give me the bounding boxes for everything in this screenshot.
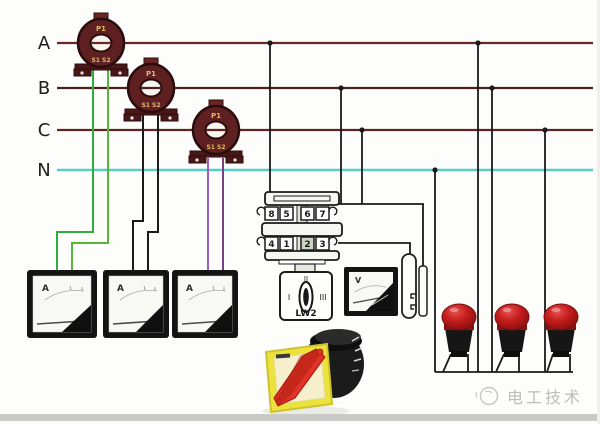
voltmeter: V: [344, 267, 398, 316]
wiring-diagram: A B C N: [0, 0, 600, 424]
watermark: 电工技术: [476, 388, 583, 408]
terminal-1: 1: [283, 240, 289, 250]
bus-label-a: A: [38, 33, 51, 54]
indicator-lamp-3: [544, 304, 578, 357]
ct2-wire-s1: [133, 115, 143, 271]
ct2-wire-s2: [148, 115, 158, 271]
bottom-border-bar: [0, 414, 600, 421]
bus-label-n: N: [37, 160, 50, 181]
ammeter-2-unit: A: [117, 284, 124, 294]
terminal-5: 5: [283, 210, 289, 220]
current-transformer-3: P1 S1 S2: [189, 100, 243, 163]
lamp3-lead-left: [547, 354, 553, 372]
junction-dots: [267, 40, 547, 172]
ammeter-3: A: [172, 270, 238, 338]
terminal-8: 8: [268, 210, 274, 220]
lamp2-lead-left: [496, 354, 504, 372]
terminal-7: 7: [319, 210, 325, 220]
cam-switch-face: II I III LW2: [280, 272, 332, 320]
ammeter-1: A: [27, 270, 97, 338]
switch-position-left: I: [288, 293, 290, 302]
terminal-2: 2: [304, 240, 310, 250]
ammeter-1-unit: A: [42, 284, 49, 294]
terminal-4: 4: [268, 240, 274, 250]
switch-to-voltmeter-wire-2: [338, 243, 410, 256]
ct1-primary-label: P1: [96, 25, 106, 33]
switch-position-right: III: [319, 293, 326, 302]
terminal-6: 6: [304, 210, 310, 220]
switch-position-top: II: [304, 275, 308, 283]
watermark-text: 电工技术: [507, 388, 583, 407]
ct3-primary-label: P1: [211, 112, 221, 120]
diagram-canvas: A B C N: [0, 0, 600, 424]
indicator-lamp-2: [495, 304, 529, 357]
lamp1-lead-left: [443, 354, 451, 372]
bus-label-b: B: [38, 78, 50, 99]
bus-label-c: C: [38, 120, 51, 141]
rotary-switch-photo: [262, 329, 364, 416]
switch-model-label: LW2: [295, 309, 316, 319]
ct3-secondary-label: S1 S2: [206, 144, 225, 151]
ct1-secondary-label: S1 S2: [91, 57, 110, 64]
ct2-secondary-label: S1 S2: [141, 102, 160, 109]
ct2-primary-label: P1: [146, 70, 156, 78]
indicator-lamp-1: [442, 304, 476, 357]
current-transformer-2: P1 S1 S2: [124, 58, 178, 121]
cam-switch-contact-stack: 8 5 6 7 4 1 2 3: [257, 192, 342, 273]
ammeter-3-unit: A: [186, 284, 193, 294]
watermark-logo-icon: [481, 388, 498, 405]
voltmeter-unit: V: [355, 276, 362, 285]
current-transformer-1: P1 S1 S2: [74, 13, 128, 76]
ammeter-2: A: [103, 270, 169, 338]
terminal-3: 3: [319, 240, 325, 250]
